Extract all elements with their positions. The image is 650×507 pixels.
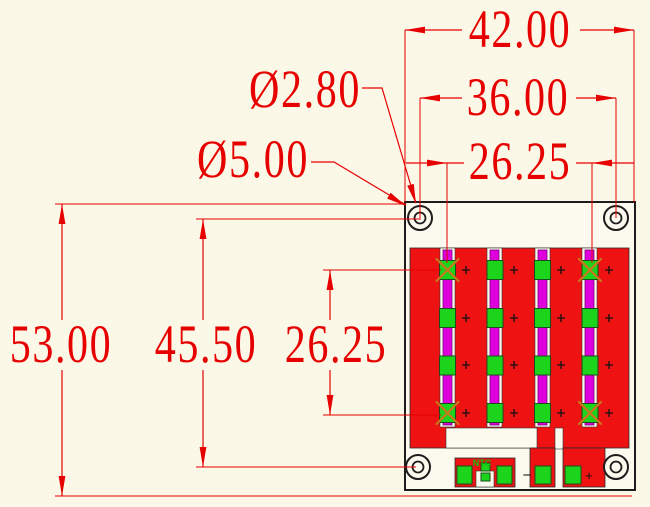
solder-pad: [487, 309, 503, 328]
dim-pad-span-v: 26.25: [285, 315, 388, 374]
ntc-pad-right: [497, 466, 512, 484]
ntc-label: NTC: [473, 458, 492, 468]
solder-pad: [487, 261, 503, 280]
solder-pad: [535, 356, 551, 375]
solder-pad: [487, 404, 503, 423]
pos-label: +: [585, 468, 593, 483]
solder-pad: [582, 309, 598, 328]
neg-terminal-pad: [535, 466, 551, 484]
dim-pad-span-h: 26.25: [469, 132, 572, 191]
copper-notch: [446, 428, 537, 448]
ntc-pad-left: [457, 466, 472, 484]
dim-dia-inner: Ø2.80: [249, 60, 361, 119]
solder-pad: [440, 309, 456, 328]
solder-pad: [535, 404, 551, 423]
pos-terminal-pad: [565, 466, 581, 484]
drawing-canvas: NTC − +: [0, 0, 650, 507]
dim-hole-pitch-v: 45.50: [155, 315, 258, 374]
dim-width-overall: 42.00: [469, 0, 572, 59]
dim-height-overall: 53.00: [10, 315, 113, 374]
dim-dia-outer: Ø5.00: [197, 130, 309, 189]
copper-slot: [555, 428, 563, 449]
solder-pad: [535, 309, 551, 328]
ntc-small-pad-bottom: [481, 473, 490, 481]
mounting-hole-inner: [611, 462, 622, 473]
pcb-dimension-drawing: NTC − +: [0, 0, 650, 507]
solder-pad: [582, 356, 598, 375]
solder-pad: [535, 261, 551, 280]
neg-label: −: [523, 467, 532, 484]
solder-pad: [487, 356, 503, 375]
dim-hole-pitch-h: 36.00: [467, 68, 570, 127]
solder-pad: [440, 356, 456, 375]
